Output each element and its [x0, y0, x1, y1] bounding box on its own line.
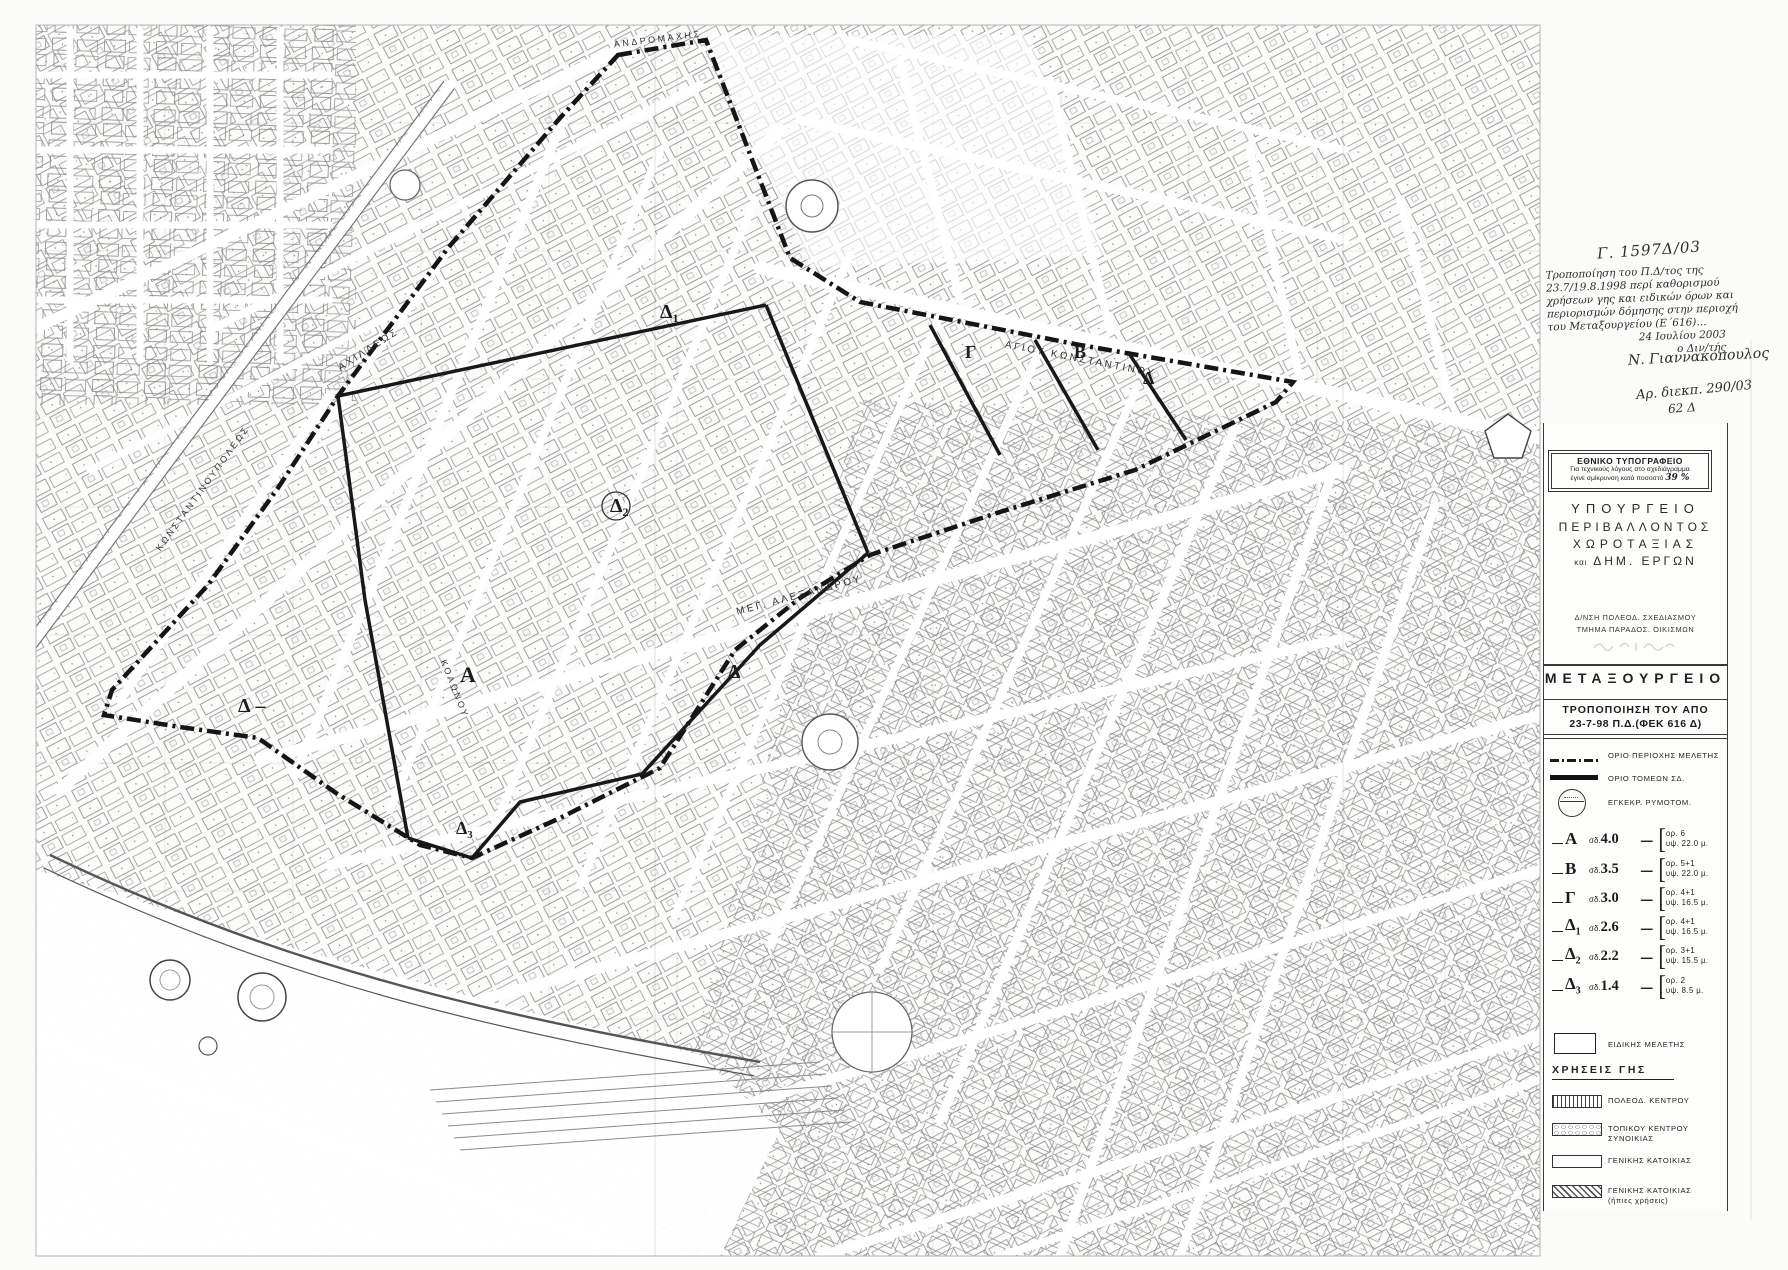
- sector-boundary-symbol: [1550, 775, 1598, 780]
- fold-line: [1342, 25, 1344, 1256]
- gas-tank: [238, 973, 286, 1021]
- title-block-and-legend: ΕΘΝΙΚΟ ΤΥΠΟΓΡΑΦΕΙΟ Για τεχνικούς λόγους …: [1543, 423, 1728, 1211]
- zone-letter: Δ2: [1565, 944, 1589, 966]
- legend-label: ΤΟΠΙΚΟΥ ΚΕΝΤΡΟΥΣΥΝΟΙΚΙΑΣ: [1608, 1124, 1722, 1143]
- zone-label: Β: [1074, 342, 1086, 362]
- divider: [1544, 664, 1727, 666]
- zone-sd-value: σδ.4.0: [1589, 830, 1641, 848]
- legend-label: ΠΟΛΕΟΔ. ΚΕΝΤΡΟΥ: [1608, 1096, 1722, 1106]
- ministry-title-line: ΠΕΡΙΒΑΛΛΟΝΤΟΣ: [1544, 520, 1727, 534]
- zone-label: Α: [460, 662, 476, 687]
- bracket-glyph: [1641, 943, 1666, 969]
- project-title: ΜΕΤΑΞΟΥΡΓΕΙΟ: [1544, 670, 1727, 686]
- fold-line: [1750, 340, 1752, 1220]
- map-drawing: ΑΝΔΡΟΜΑΧΗΣΑΓΙΟΥ ΚΩΝΣΤΑΝΤΙΝΟΥΜΕΓ. ΑΛΕΞΑΝΔ…: [0, 25, 1540, 1256]
- subtitle-line: 23-7-98 Π.Δ.(ΦΕΚ 616 Δ): [1544, 718, 1727, 730]
- bracket-glyph: [1641, 914, 1666, 940]
- zone-letter: Α: [1565, 829, 1589, 849]
- study-boundary-symbol: [1550, 759, 1598, 762]
- printing-office-stamp: ΕΘΝΙΚΟ ΤΥΠΟΓΡΑΦΕΙΟ Για τεχνικούς λόγους …: [1551, 453, 1709, 489]
- bracket-glyph: [1641, 973, 1666, 999]
- zone-limits: ορ. 3+1υψ. 15.5 μ.: [1666, 946, 1709, 965]
- bracket-glyph: [1641, 826, 1666, 852]
- zone-row: Βσδ.3.5ορ. 5+1υψ. 22.0 μ.: [1552, 855, 1727, 882]
- zone-letter: Γ: [1565, 888, 1589, 908]
- scanned-planning-map-page: ΑΝΔΡΟΜΑΧΗΣΑΓΙΟΥ ΚΩΝΣΤΑΝΤΙΝΟΥΜΕΓ. ΑΛΕΞΑΝΔ…: [0, 0, 1788, 1270]
- divider: [1544, 734, 1727, 735]
- legend-label: ΟΡΙΟ ΤΟΜΕΩΝ ΣΔ.: [1608, 774, 1722, 784]
- legend-label: ΓΕΝΙΚΗΣ ΚΑΤΟΙΚΙΑΣ: [1608, 1156, 1722, 1166]
- zone-dash: [1552, 893, 1563, 903]
- zone-dash: [1552, 922, 1563, 932]
- zone-letter: Δ1: [1565, 915, 1589, 937]
- zone-sd-value: σδ.2.2: [1589, 947, 1641, 965]
- handwritten-docket-code: 62 Δ: [1668, 400, 1697, 416]
- zone-dash: [1552, 951, 1563, 961]
- stamp-title: ΕΘΝΙΚΟ ΤΥΠΟΓΡΑΦΕΙΟ: [1552, 456, 1708, 466]
- handwritten-note: Τροποποίηση του Π.Δ/τος της23.7/19.8.199…: [1545, 262, 1752, 360]
- stamp-line: έγινε σμίκρυνση κατά ποσοστό 39 %: [1552, 474, 1708, 483]
- zone-limits: ορ. 4+1υψ. 16.5 μ.: [1666, 888, 1709, 907]
- zone-limits: ορ. 4+1υψ. 16.5 μ.: [1666, 917, 1709, 936]
- approval-seal-icon: [1558, 789, 1586, 817]
- bracket-glyph: [1641, 856, 1666, 882]
- city-map: ΑΝΔΡΟΜΑΧΗΣΑΓΙΟΥ ΚΩΝΣΤΑΝΤΙΝΟΥΜΕΓ. ΑΛΕΞΑΝΔ…: [0, 0, 1788, 1270]
- land-use-header: ΧΡΗΣΕΙΣ ΓΗΣ: [1552, 1064, 1674, 1080]
- zone-limits: ορ. 6υψ. 22.0 μ.: [1666, 829, 1709, 848]
- zone-dash: [1552, 864, 1563, 874]
- zone-row: Δ3σδ.1.4ορ. 2υψ. 8.5 μ.: [1552, 972, 1727, 999]
- zone-sd-value: σδ.3.0: [1589, 889, 1641, 907]
- zone-row: Δ2σδ.2.2ορ. 3+1υψ. 15.5 μ.: [1552, 942, 1727, 969]
- ministry-title-line: ΥΠΟΥΡΓΕΙΟ: [1544, 501, 1727, 516]
- legend-label: ΟΡΙΟ ΠΕΡΙΟΧΗΣ ΜΕΛΕΤΗΣ: [1608, 751, 1722, 761]
- land-use-swatch: [1552, 1095, 1602, 1108]
- gas-tank: [150, 960, 190, 1000]
- zone-sd-value: σδ.1.4: [1589, 977, 1641, 995]
- fold-line: [654, 25, 656, 1256]
- subtitle-line: ΤΡΟΠΟΠΟΙΗΣΗ ΤΟΥ ΑΠΟ: [1544, 704, 1727, 716]
- legend-label: ΓΕΝΙΚΗΣ ΚΑΤΟΙΚΙΑΣ(ήπιες χρήσεις): [1608, 1186, 1722, 1205]
- zone-row: Δ1σδ.2.6ορ. 4+1υψ. 16.5 μ.: [1552, 913, 1727, 940]
- department-line: Δ/ΝΣΗ ΠΟΛΕΟΔ. ΣΧΕΔΙΑΣΜΟΥ: [1544, 613, 1727, 622]
- zone-limits: ορ. 5+1υψ. 22.0 μ.: [1666, 859, 1709, 878]
- department-line: ΤΜΗΜΑ ΠΑΡΑΔΟΣ. ΟΙΚΙΣΜΩΝ: [1544, 625, 1727, 634]
- zone-limits: ορ. 2υψ. 8.5 μ.: [1666, 976, 1704, 995]
- zone-sd-value: σδ.3.5: [1589, 860, 1641, 878]
- bracket-glyph: [1641, 885, 1666, 911]
- zone-row: Ασδ.4.0ορ. 6υψ. 22.0 μ.: [1552, 825, 1727, 852]
- land-use-swatch: [1552, 1123, 1602, 1136]
- legend-label: ΕΙΔΙΚΗΣ ΜΕΛΕΤΗΣ: [1608, 1040, 1722, 1050]
- land-use-swatch: [1552, 1155, 1602, 1168]
- divider: [1544, 738, 1727, 739]
- faint-date-stamp: [1590, 639, 1680, 653]
- zone-dash: [1552, 834, 1563, 844]
- zone-label: Δ: [1143, 368, 1154, 388]
- zone-label: Δ: [728, 661, 741, 683]
- zone-label: Γ: [965, 342, 976, 362]
- divider: [1544, 699, 1727, 700]
- ministry-title-line: ΧΩΡΟΤΑΞΙΑΣ: [1544, 537, 1727, 551]
- zone-row: Γσδ.3.0ορ. 4+1υψ. 16.5 μ.: [1552, 884, 1727, 911]
- zone-sd-value: σδ.2.6: [1589, 918, 1641, 936]
- legend-label: ΕΓΚΕΚΡ. ΡΥΜΟΤΟΜ.: [1608, 798, 1722, 808]
- zone-letter: Β: [1565, 859, 1589, 879]
- reduction-percent: 39 %: [1665, 473, 1689, 483]
- land-use-swatch: [1552, 1185, 1602, 1198]
- special-study-swatch: [1554, 1033, 1596, 1054]
- zone-dash: [1552, 981, 1563, 991]
- ministry-title-line: και ΔΗΜ. ΕΡΓΩΝ: [1544, 554, 1727, 568]
- zone-letter: Δ3: [1565, 974, 1589, 996]
